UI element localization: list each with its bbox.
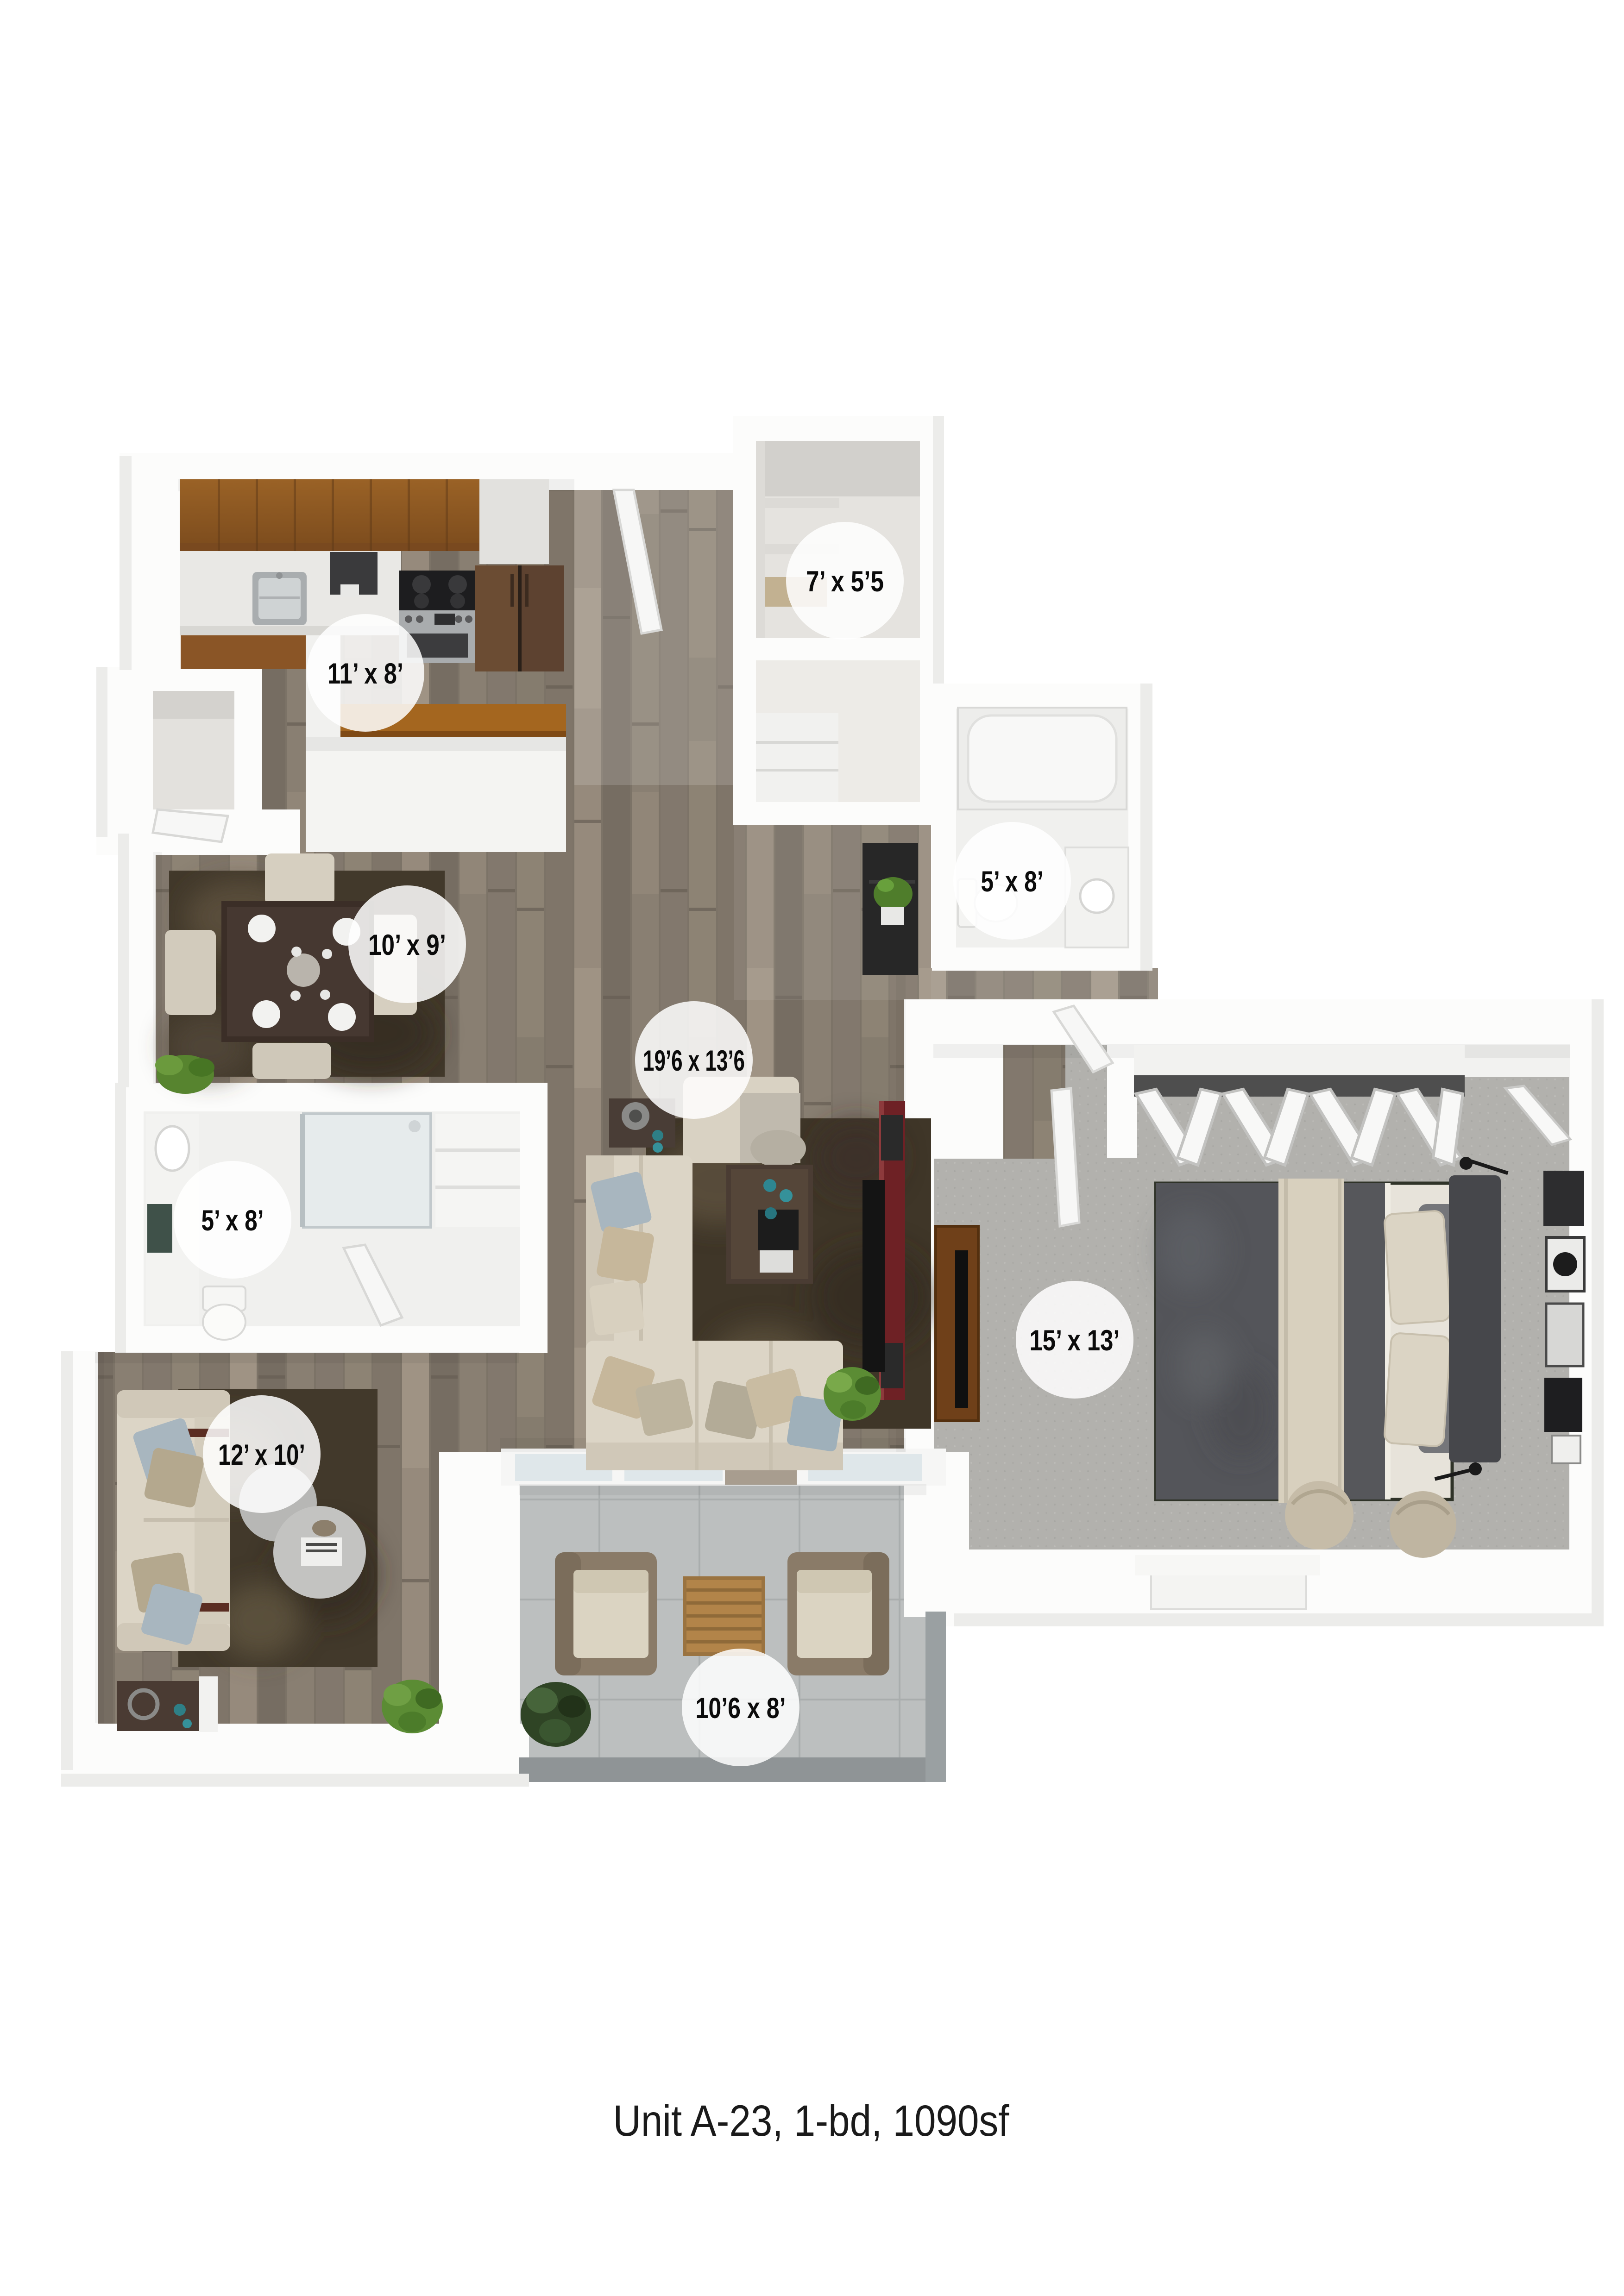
svg-text:12’ x 10’: 12’ x 10’ [218,1439,305,1471]
svg-text:10’6 x 8’: 10’6 x 8’ [696,1692,786,1725]
svg-text:Unit A-23, 1-bd, 1090sf: Unit A-23, 1-bd, 1090sf [613,2096,1010,2145]
svg-text:11’ x 8’: 11’ x 8’ [327,658,403,690]
svg-text:7’ x 5’5: 7’ x 5’5 [806,565,884,598]
svg-text:19’6 x 13’6: 19’6 x 13’6 [643,1045,745,1077]
svg-text:15’ x 13’: 15’ x 13’ [1030,1324,1120,1357]
svg-text:10’ x 9’: 10’ x 9’ [368,929,446,961]
svg-text:5’ x 8’: 5’ x 8’ [201,1204,264,1237]
svg-text:5’ x 8’: 5’ x 8’ [981,866,1044,898]
